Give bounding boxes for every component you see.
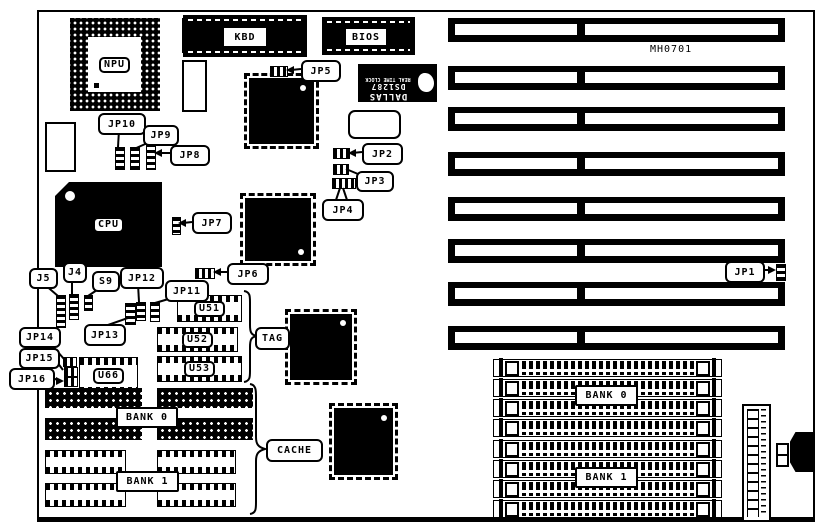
jp11-label: JP11	[165, 280, 209, 302]
cache-bank1-label: BANK 1	[116, 471, 179, 492]
isa-slot-segment	[455, 203, 577, 214]
jp16-label: JP16	[9, 368, 55, 390]
jp15-jumper	[64, 367, 78, 377]
dallas-desc-text: REAL TIME CLOCK	[360, 76, 416, 82]
isa-slot	[448, 18, 785, 42]
simm-socket	[493, 440, 722, 458]
isa-slot-segment	[455, 288, 577, 299]
dallas-logo-icon	[418, 73, 434, 92]
cpu-chip: CPU	[55, 182, 162, 267]
isa-slot	[448, 326, 785, 350]
simm-bank1-label: BANK 1	[575, 467, 638, 488]
isa-slot-segment	[455, 72, 577, 83]
cache-bank1-socket	[45, 450, 126, 474]
npu-label: NPU	[99, 57, 130, 73]
isa-slot-segment	[585, 332, 778, 343]
pin-row	[188, 51, 302, 53]
dallas-chip-markings: DALLAS DS1287 REAL TIME CLOCK	[360, 65, 416, 101]
jp4-label: JP4	[322, 199, 364, 221]
jp10-label: JP10	[98, 113, 146, 135]
isa-slot	[448, 239, 785, 263]
motherboard-diagram: MH0701 NPU KBD BIOS DALLAS DS1287 REAL T…	[0, 0, 821, 527]
jp13-jumper	[125, 303, 136, 325]
jp8-label: JP8	[170, 145, 210, 166]
npu-socket: NPU	[70, 18, 160, 111]
jp3-jumper	[333, 164, 349, 175]
u52-socket: U52	[157, 327, 238, 352]
keyboard-din-connector	[790, 432, 815, 472]
qfp-pin1-dot	[340, 320, 346, 326]
j4-jumper	[69, 294, 79, 320]
j5-label: J5	[29, 268, 58, 289]
jp1-jumper	[776, 264, 786, 281]
isa-slot-segment	[455, 158, 577, 169]
jp14-label: JP14	[19, 327, 61, 348]
kbd-label: KBD	[222, 26, 268, 48]
power-connector	[742, 404, 771, 522]
dallas-brand-text: DALLAS	[360, 91, 416, 101]
dallas-rtc-chip: DALLAS DS1287 REAL TIME CLOCK	[358, 64, 437, 102]
tag-label: TAG	[255, 327, 290, 350]
qfp-pin1-dot	[300, 85, 306, 91]
simm-bank0-label: BANK 0	[575, 385, 638, 406]
jp7-jumper	[172, 217, 181, 235]
qfp-pin1-dot	[298, 249, 304, 255]
qfp-chip	[329, 403, 398, 480]
isa-slot	[448, 152, 785, 176]
simm-socket	[493, 500, 722, 518]
board-model-text: MH0701	[650, 44, 692, 55]
pin-row	[327, 49, 410, 51]
jp15-label: JP15	[19, 348, 60, 369]
jp11-jumper	[150, 302, 160, 322]
jp1-label: JP1	[725, 261, 765, 283]
u53-label: U53	[184, 361, 215, 377]
isa-slot-segment	[455, 332, 577, 343]
jp6-label: JP6	[227, 263, 269, 285]
isa-slot-segment	[455, 113, 577, 124]
pin-row	[188, 19, 302, 21]
isa-slot-segment	[585, 245, 778, 256]
isa-slot-segment	[455, 245, 577, 256]
isa-slot-segment	[455, 24, 577, 35]
isa-slot	[448, 107, 785, 131]
cpu-pin1-dot	[65, 191, 75, 201]
u52-label: U52	[182, 332, 213, 348]
isa-slot	[448, 66, 785, 90]
dallas-part-text: DS1287	[360, 81, 416, 90]
jp14-jumper	[63, 357, 77, 367]
jp3-label: JP3	[356, 171, 394, 192]
isa-slot-segment	[585, 158, 778, 169]
simm-socket	[493, 359, 722, 377]
jp6-jumper	[195, 268, 215, 279]
qfp-pin1-dot	[381, 415, 387, 421]
j4-label: J4	[63, 262, 87, 283]
jp12-label: JP12	[120, 267, 164, 289]
s9-label: S9	[92, 271, 120, 292]
u53-socket: U53	[157, 356, 242, 382]
s9-jumper	[84, 295, 93, 311]
cache-bank0-label: BANK 0	[116, 407, 178, 428]
connector-stub	[776, 454, 789, 467]
simm-socket	[493, 419, 722, 437]
jp9-jumper	[130, 147, 140, 170]
oscillator	[348, 110, 401, 139]
jp13-label: JP13	[84, 324, 126, 346]
isa-slot-segment	[585, 288, 778, 299]
u66-label: U66	[93, 368, 124, 384]
npu-pin1-marker	[94, 83, 99, 88]
cache-bank0-socket	[45, 388, 142, 408]
cache-bank1-socket	[45, 483, 126, 507]
cache-label: CACHE	[266, 439, 323, 462]
empty-socket	[182, 60, 207, 112]
pin-row	[327, 21, 410, 23]
isa-slot	[448, 282, 785, 306]
bios-label: BIOS	[344, 27, 388, 47]
qfp-chip	[240, 193, 316, 266]
jp8-jumper	[146, 143, 156, 170]
qfp-chip	[285, 309, 357, 385]
jp7-label: JP7	[192, 212, 232, 234]
isa-slot-segment	[585, 72, 778, 83]
jp2-label: JP2	[362, 143, 403, 165]
isa-slot-segment	[585, 24, 778, 35]
qfp-chip	[244, 73, 319, 149]
isa-slot	[448, 197, 785, 221]
j5-jumper	[56, 295, 66, 328]
u51-label: U51	[194, 301, 225, 317]
jp12-jumper	[136, 302, 146, 321]
isa-slot-segment	[585, 113, 778, 124]
jp10-jumper	[115, 147, 125, 170]
jp4-jumper	[332, 178, 356, 189]
jp5-jumper	[270, 66, 288, 77]
cache-bank0-socket	[157, 388, 253, 408]
cpu-label: CPU	[93, 217, 124, 233]
jp5-label: JP5	[301, 60, 341, 82]
isa-slot-segment	[585, 203, 778, 214]
jp16-jumper	[64, 377, 78, 387]
empty-socket	[45, 122, 76, 172]
jp9-label: JP9	[143, 125, 179, 146]
jp2-jumper	[333, 148, 350, 159]
